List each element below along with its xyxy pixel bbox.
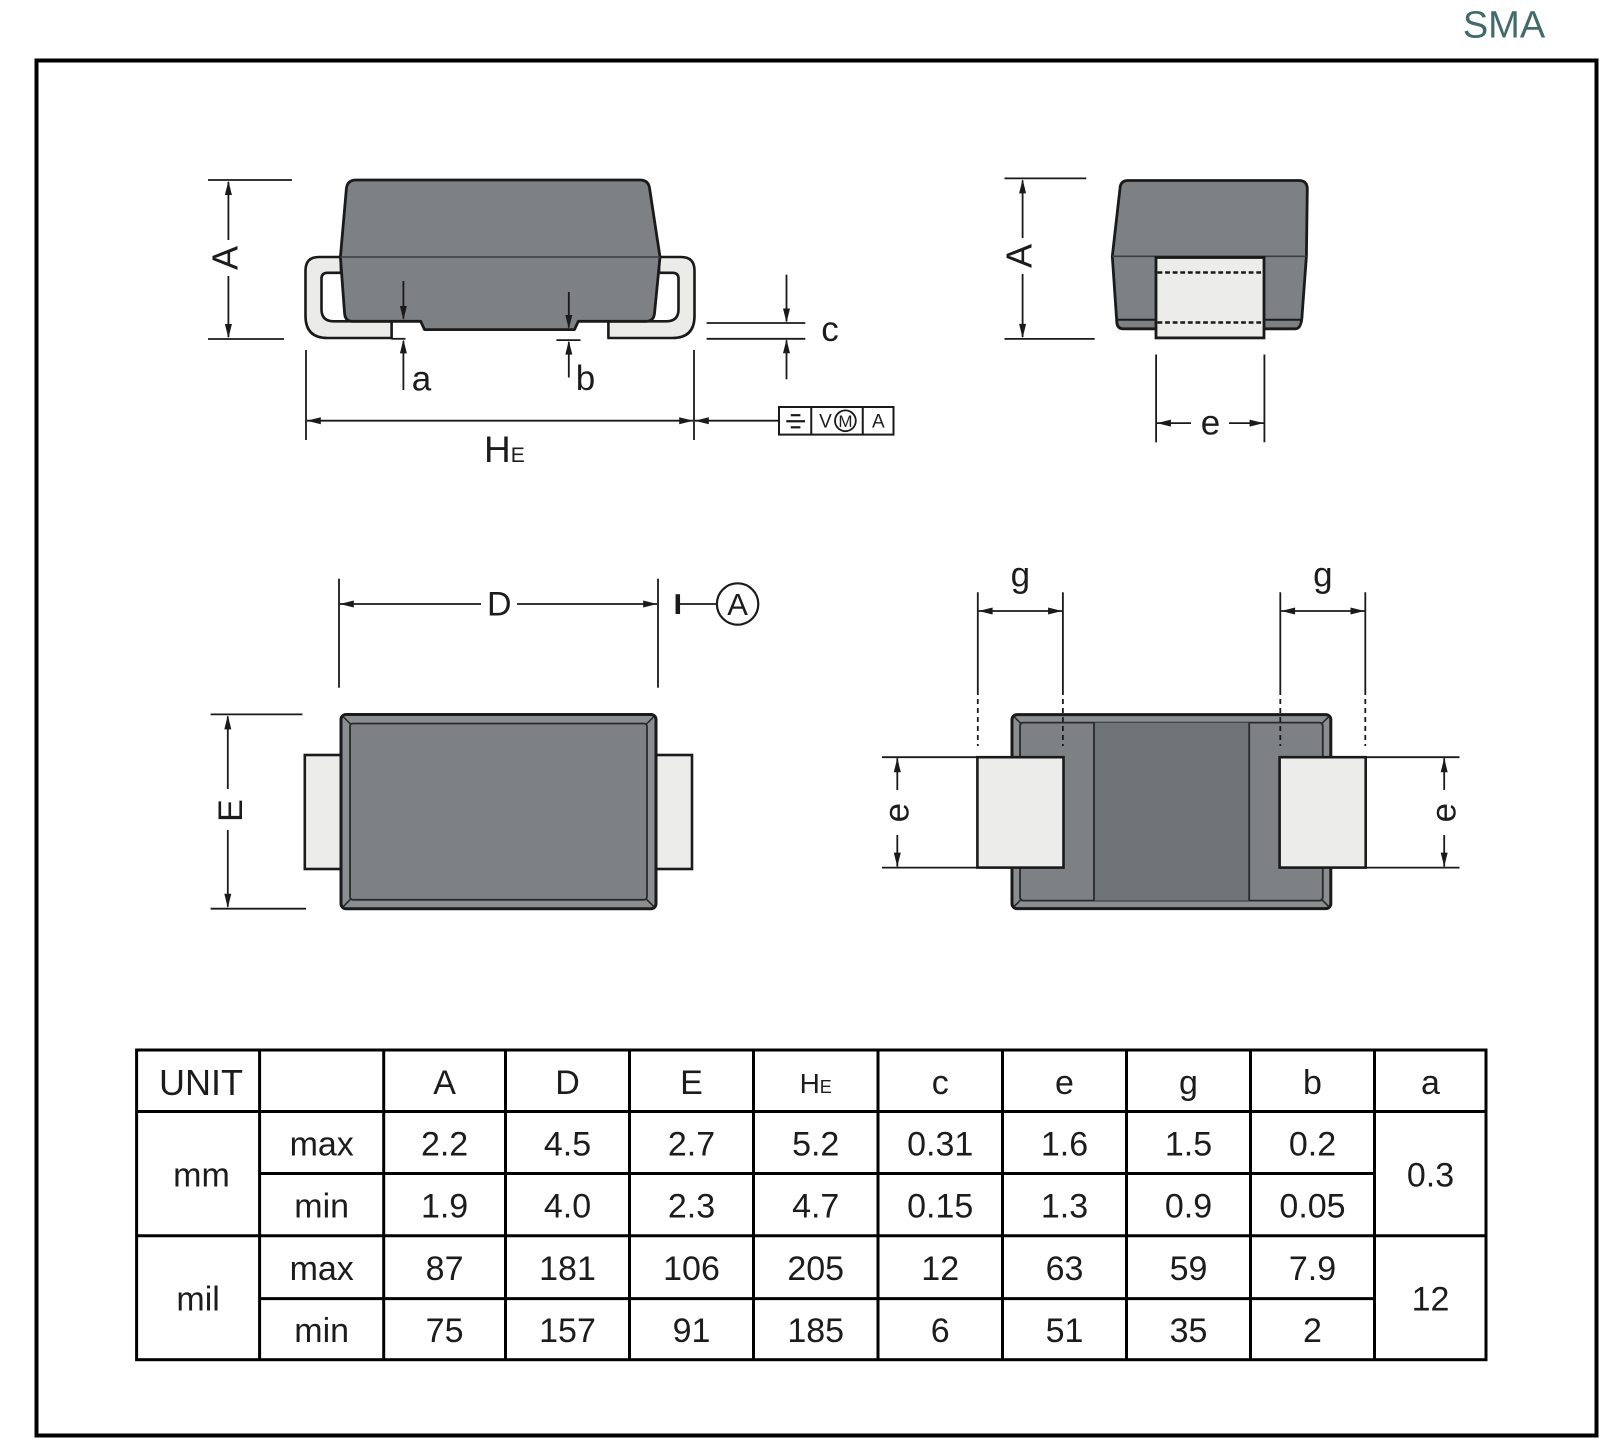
svg-text:75: 75 — [426, 1312, 464, 1350]
svg-text:63: 63 — [1046, 1250, 1084, 1288]
svg-text:0.9: 0.9 — [1165, 1188, 1212, 1226]
svg-text:c: c — [932, 1064, 949, 1102]
svg-text:D: D — [555, 1064, 580, 1102]
svg-text:a: a — [412, 360, 432, 399]
svg-text:max: max — [290, 1250, 354, 1288]
svg-text:157: 157 — [539, 1312, 596, 1350]
svg-text:12: 12 — [1412, 1281, 1450, 1319]
svg-text:D: D — [487, 586, 512, 624]
svg-text:UNIT: UNIT — [159, 1062, 243, 1103]
svg-text:b: b — [576, 359, 595, 398]
svg-text:min: min — [294, 1188, 349, 1226]
svg-text:1.6: 1.6 — [1041, 1126, 1088, 1164]
svg-text:2.3: 2.3 — [668, 1188, 715, 1226]
svg-text:min: min — [294, 1312, 349, 1350]
svg-text:87: 87 — [426, 1250, 464, 1288]
svg-text:4.0: 4.0 — [544, 1188, 591, 1226]
svg-text:A: A — [727, 587, 748, 622]
svg-text:A: A — [205, 246, 246, 270]
svg-text:e: e — [1055, 1064, 1074, 1102]
svg-text:e: e — [878, 803, 917, 822]
svg-text:0.31: 0.31 — [907, 1126, 973, 1164]
svg-text:g: g — [1313, 556, 1332, 595]
svg-text:205: 205 — [787, 1250, 844, 1288]
svg-text:mm: mm — [173, 1157, 230, 1195]
svg-text:59: 59 — [1170, 1250, 1208, 1288]
svg-text:2.2: 2.2 — [421, 1126, 468, 1164]
svg-text:6: 6 — [931, 1312, 950, 1350]
svg-text:M: M — [838, 412, 852, 431]
svg-text:V: V — [819, 411, 832, 432]
svg-text:e: e — [1424, 803, 1463, 822]
svg-text:35: 35 — [1170, 1312, 1208, 1350]
svg-text:g: g — [1179, 1064, 1198, 1102]
svg-text:A: A — [433, 1064, 456, 1102]
svg-text:0.15: 0.15 — [907, 1188, 973, 1226]
svg-text:0.3: 0.3 — [1407, 1157, 1454, 1195]
svg-text:0.05: 0.05 — [1279, 1188, 1345, 1226]
svg-text:E: E — [212, 799, 250, 822]
svg-text:1.9: 1.9 — [421, 1188, 468, 1226]
svg-text:7.9: 7.9 — [1289, 1250, 1336, 1288]
svg-text:106: 106 — [663, 1250, 720, 1288]
svg-text:a: a — [1421, 1064, 1440, 1102]
svg-text:51: 51 — [1046, 1312, 1084, 1350]
svg-text:A: A — [872, 412, 885, 433]
svg-text:b: b — [1303, 1064, 1322, 1102]
svg-text:g: g — [1011, 556, 1030, 595]
svg-text:12: 12 — [921, 1250, 959, 1288]
svg-text:E: E — [680, 1064, 703, 1102]
svg-text:181: 181 — [539, 1250, 596, 1288]
svg-text:2: 2 — [1303, 1312, 1322, 1350]
svg-text:0.2: 0.2 — [1289, 1126, 1336, 1164]
svg-text:1.3: 1.3 — [1041, 1188, 1088, 1226]
svg-text:1.5: 1.5 — [1165, 1126, 1212, 1164]
svg-text:max: max — [290, 1126, 354, 1164]
svg-text:4.7: 4.7 — [792, 1188, 839, 1226]
svg-text:A: A — [999, 244, 1040, 268]
svg-text:2.7: 2.7 — [668, 1126, 715, 1164]
svg-text:185: 185 — [787, 1312, 844, 1350]
svg-text:e: e — [1201, 404, 1220, 443]
svg-text:4.5: 4.5 — [544, 1126, 591, 1164]
svg-text:91: 91 — [673, 1312, 711, 1350]
svg-text:SMA: SMA — [1463, 5, 1546, 47]
svg-text:c: c — [821, 310, 839, 349]
svg-text:5.2: 5.2 — [792, 1126, 839, 1164]
svg-text:mil: mil — [176, 1281, 219, 1319]
